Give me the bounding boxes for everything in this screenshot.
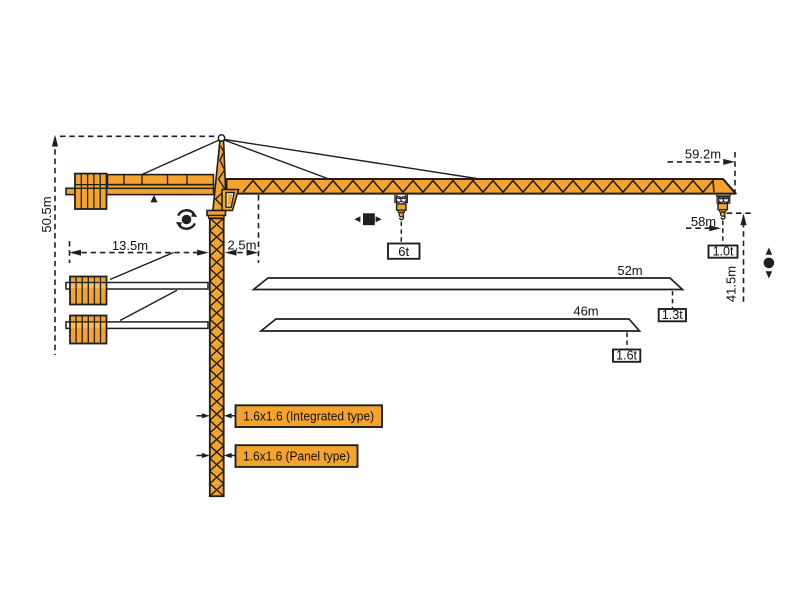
svg-text:59.2m: 59.2m [685,147,721,162]
svg-text:13.5m: 13.5m [112,238,148,253]
svg-text:52m: 52m [617,263,642,278]
svg-text:50.5m: 50.5m [39,196,54,232]
svg-text:1.0t: 1.0t [713,245,734,259]
svg-text:58m: 58m [691,214,716,229]
svg-text:1.6x1.6 (Panel type): 1.6x1.6 (Panel type) [243,449,350,464]
svg-text:2.5m: 2.5m [228,238,257,253]
svg-text:1.6x1.6 (Integrated type): 1.6x1.6 (Integrated type) [243,409,374,424]
svg-text:1.3t: 1.3t [662,308,683,322]
svg-text:46m: 46m [573,304,598,319]
svg-text:41.5m: 41.5m [724,266,739,302]
svg-text:6t: 6t [398,244,409,259]
svg-text:1.6t: 1.6t [616,349,637,363]
